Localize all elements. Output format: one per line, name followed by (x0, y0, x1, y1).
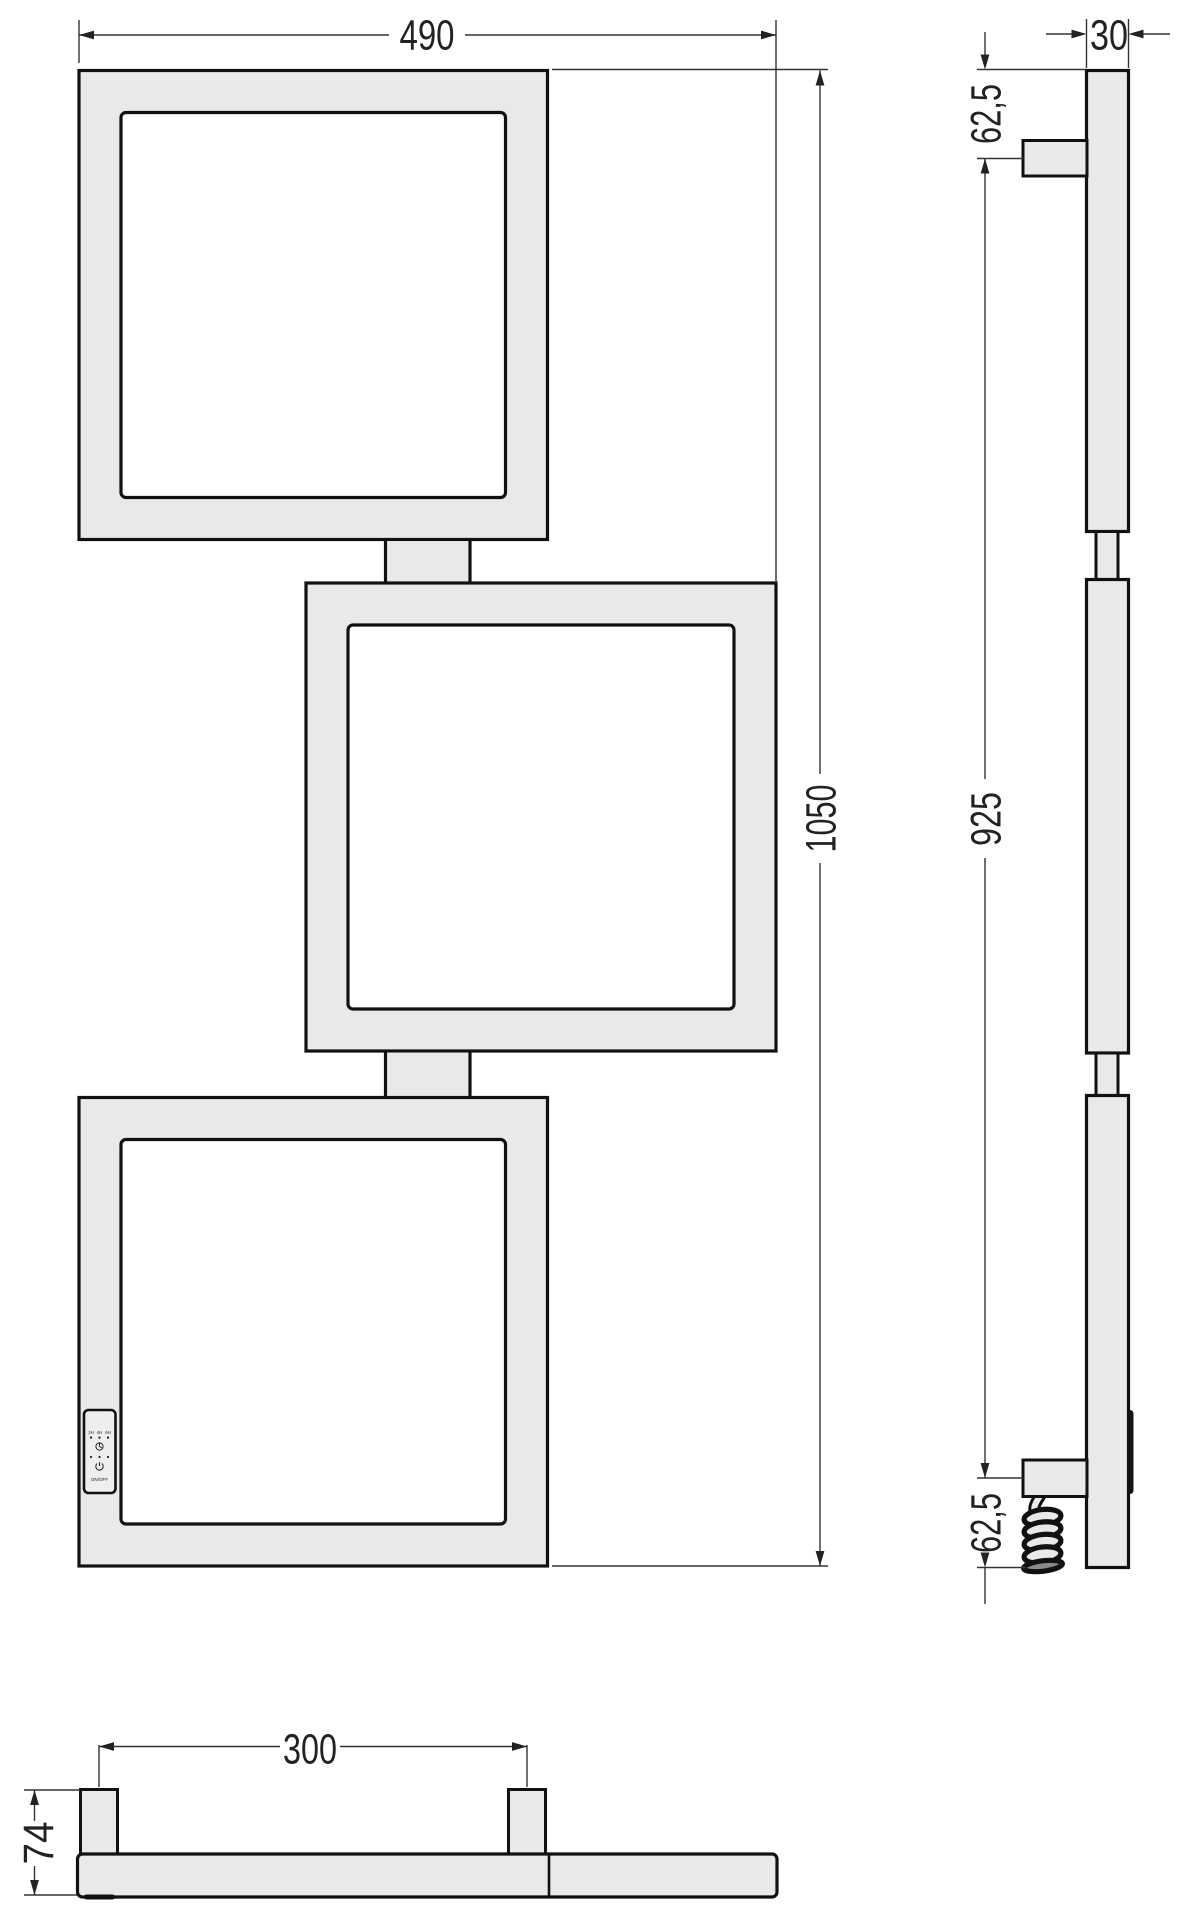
svg-text:1050: 1050 (798, 785, 846, 853)
svg-text:4H: 4H (97, 1430, 103, 1435)
svg-text:62,5: 62,5 (963, 84, 1011, 144)
svg-text:ON/OFF: ON/OFF (91, 1477, 109, 1482)
svg-text:74: 74 (15, 1822, 63, 1865)
svg-text:62,5: 62,5 (963, 1493, 1011, 1553)
svg-text:30: 30 (1090, 12, 1128, 60)
svg-text:925: 925 (963, 792, 1011, 846)
svg-text:300: 300 (283, 1726, 337, 1774)
svg-text:2H: 2H (88, 1430, 94, 1435)
svg-text:6H: 6H (105, 1430, 111, 1435)
svg-text:490: 490 (400, 12, 455, 60)
